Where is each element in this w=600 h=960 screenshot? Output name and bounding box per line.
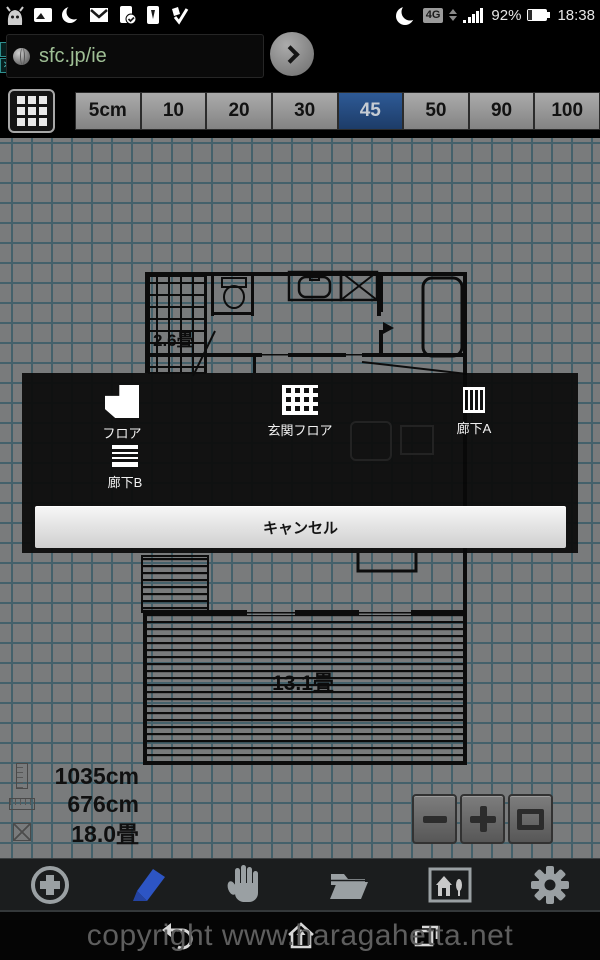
dialog-item-label: 玄関フロア: [267, 420, 332, 439]
height-value: 1035cm: [43, 763, 139, 790]
measurement-readout: 1035cm 676cm 18.0畳: [8, 762, 139, 846]
clock: 18:38: [557, 7, 595, 24]
gallery-icon: [33, 5, 53, 25]
dialog-item-entrance-floor[interactable]: 玄関フロア: [250, 385, 350, 439]
signal-bars-icon: [463, 7, 485, 23]
open-file-button[interactable]: [326, 863, 372, 907]
watermark-text: copyright www.haragahetta.net: [0, 919, 600, 953]
floor-type-dialog: フロア 玄関フロア 廊下A 廊下B キャンセル: [22, 373, 578, 553]
battery-icon: [527, 9, 551, 21]
status-bar: 4G 92% 18:38: [0, 0, 600, 30]
notification-icons: [5, 4, 189, 26]
app-robot-icon: [5, 4, 25, 26]
add-button[interactable]: [28, 863, 72, 907]
url-text: sfc.jp/ie: [39, 45, 107, 68]
scale-button-50[interactable]: 50: [404, 93, 468, 129]
moon-icon: [61, 5, 81, 25]
network-4g-badge: 4G: [423, 8, 444, 23]
ghost-kitchen-sink: [350, 421, 392, 461]
height-measure-row: 1035cm: [8, 762, 139, 790]
dialog-item-floor[interactable]: フロア: [72, 385, 172, 442]
dialog-item-label: フロア: [102, 423, 141, 442]
entrance-floor-icon: [282, 385, 318, 415]
zoom-controls: [412, 794, 553, 844]
globe-icon: [13, 48, 30, 65]
kitchen-island: [358, 553, 416, 571]
bottom-toolbar: [0, 858, 600, 912]
vertical-ruler-icon: [16, 763, 28, 789]
entrance-hatch-area: [149, 276, 205, 373]
plus-icon: [470, 806, 496, 832]
grid-icon: [17, 96, 47, 126]
plan-view-button[interactable]: [427, 863, 473, 907]
minus-icon: [423, 816, 447, 823]
bathtub: [423, 278, 462, 356]
gmail-icon: [89, 5, 109, 25]
scale-button-group: 5cm 10 20 30 45 50 90 100: [75, 92, 600, 130]
scale-button-100[interactable]: 100: [535, 93, 599, 129]
corridor-b-icon: [112, 445, 138, 467]
scale-button-5cm[interactable]: 5cm: [76, 93, 140, 129]
data-arrows-icon: [449, 9, 457, 21]
chevron-right-icon: [281, 45, 299, 63]
horizontal-ruler-icon: [9, 798, 35, 810]
fit-rect-icon: [517, 809, 544, 830]
corridor-a-icon: [463, 387, 485, 413]
scale-button-45-selected[interactable]: 45: [339, 93, 403, 129]
floor-icon: [105, 385, 139, 418]
go-button[interactable]: [270, 32, 314, 76]
room-label-stairs: 2.6畳: [153, 331, 194, 350]
scale-button-10[interactable]: 10: [142, 93, 206, 129]
area-measure-row: 18.0畳: [8, 818, 139, 846]
system-status-icons: 4G 92% 18:38: [395, 3, 595, 27]
tasks-check-icon: [169, 5, 189, 25]
fit-screen-button[interactable]: [508, 794, 553, 844]
house-photo-icon: [430, 869, 470, 901]
grid-toggle-button[interactable]: [8, 89, 55, 133]
stairs-stripe-block: [142, 556, 208, 612]
zoom-out-button[interactable]: [412, 794, 457, 844]
width-measure-row: 676cm: [8, 790, 139, 818]
scale-button-30[interactable]: 30: [273, 93, 337, 129]
battery-percent: 92%: [491, 7, 521, 24]
room-label-living: 13.1畳: [272, 672, 334, 695]
zoom-in-button[interactable]: [460, 794, 505, 844]
scale-button-90[interactable]: 90: [470, 93, 534, 129]
pen-tool-button[interactable]: [127, 863, 171, 907]
screen: 4G 92% 18:38 i ✕ sfc.jp/ie 5cm 10 20 30 …: [0, 0, 600, 960]
hand-icon: [226, 865, 258, 902]
address-bar: i ✕ sfc.jp/ie: [0, 30, 600, 84]
dialog-item-corridor-a[interactable]: 廊下A: [424, 387, 524, 437]
pan-tool-button[interactable]: [226, 863, 270, 907]
plan-fixtures: [222, 272, 462, 356]
dialog-item-corridor-b[interactable]: 廊下B: [75, 445, 175, 491]
area-value: 18.0畳: [43, 815, 139, 849]
tablet-check-icon: [117, 5, 137, 25]
folder-icon: [330, 874, 368, 899]
url-input[interactable]: sfc.jp/ie: [6, 34, 264, 78]
dialog-item-label: 廊下B: [108, 472, 143, 491]
moon-icon: [395, 3, 417, 27]
area-icon: [13, 823, 31, 841]
toilet-bowl: [224, 286, 244, 308]
scale-toolbar: 5cm 10 20 30 45 50 90 100: [0, 84, 600, 138]
dialog-item-label: 廊下A: [457, 418, 492, 437]
settings-button[interactable]: [528, 863, 572, 907]
scale-button-20[interactable]: 20: [207, 93, 271, 129]
phone-icon: [145, 5, 161, 25]
cancel-button[interactable]: キャンセル: [35, 506, 566, 548]
gear-icon: [531, 866, 569, 904]
width-value: 676cm: [43, 791, 139, 818]
